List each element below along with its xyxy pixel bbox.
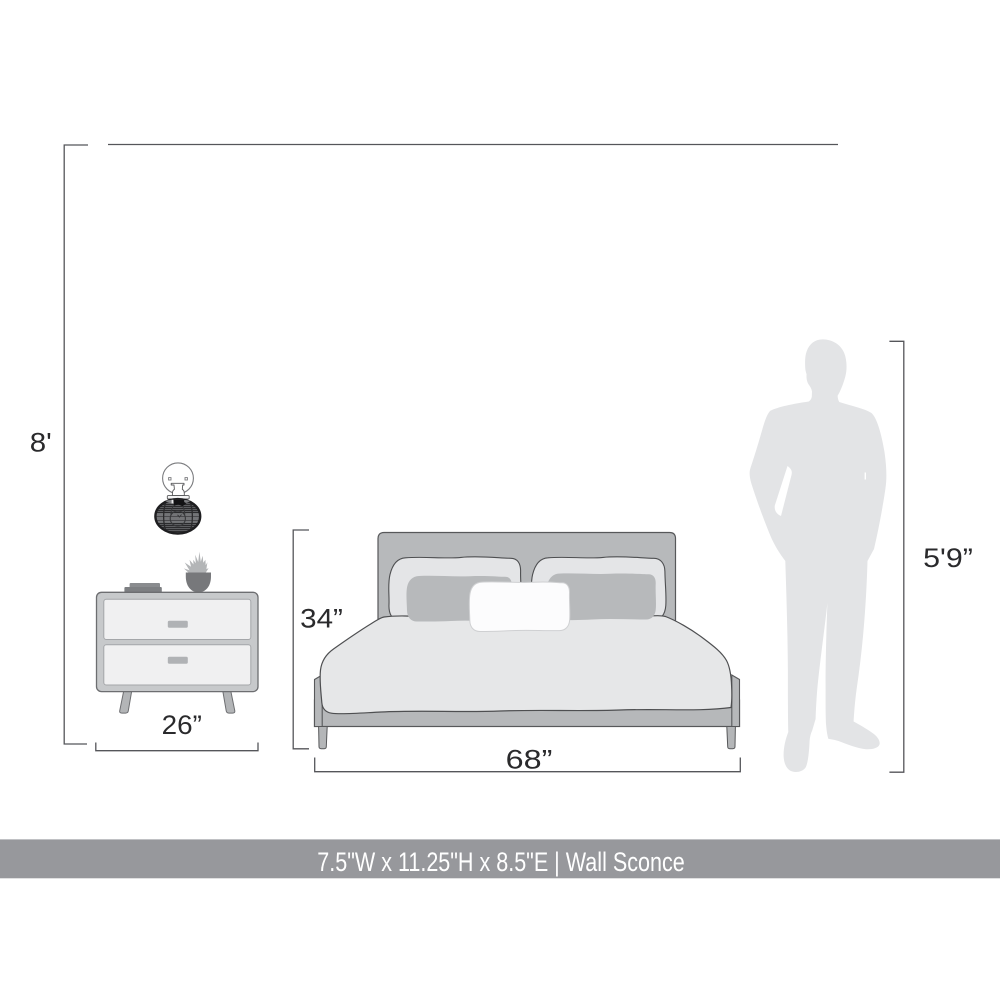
- svg-text:26”: 26”: [162, 710, 202, 740]
- svg-text:5'9”: 5'9”: [923, 543, 973, 573]
- svg-text:8': 8': [30, 428, 52, 458]
- svg-text:68”: 68”: [506, 745, 553, 775]
- svg-text:34”: 34”: [300, 604, 343, 634]
- svg-text:7.5"W x 11.25"H x 8.5"E | Wall: 7.5"W x 11.25"H x 8.5"E | Wall Sconce: [317, 847, 684, 877]
